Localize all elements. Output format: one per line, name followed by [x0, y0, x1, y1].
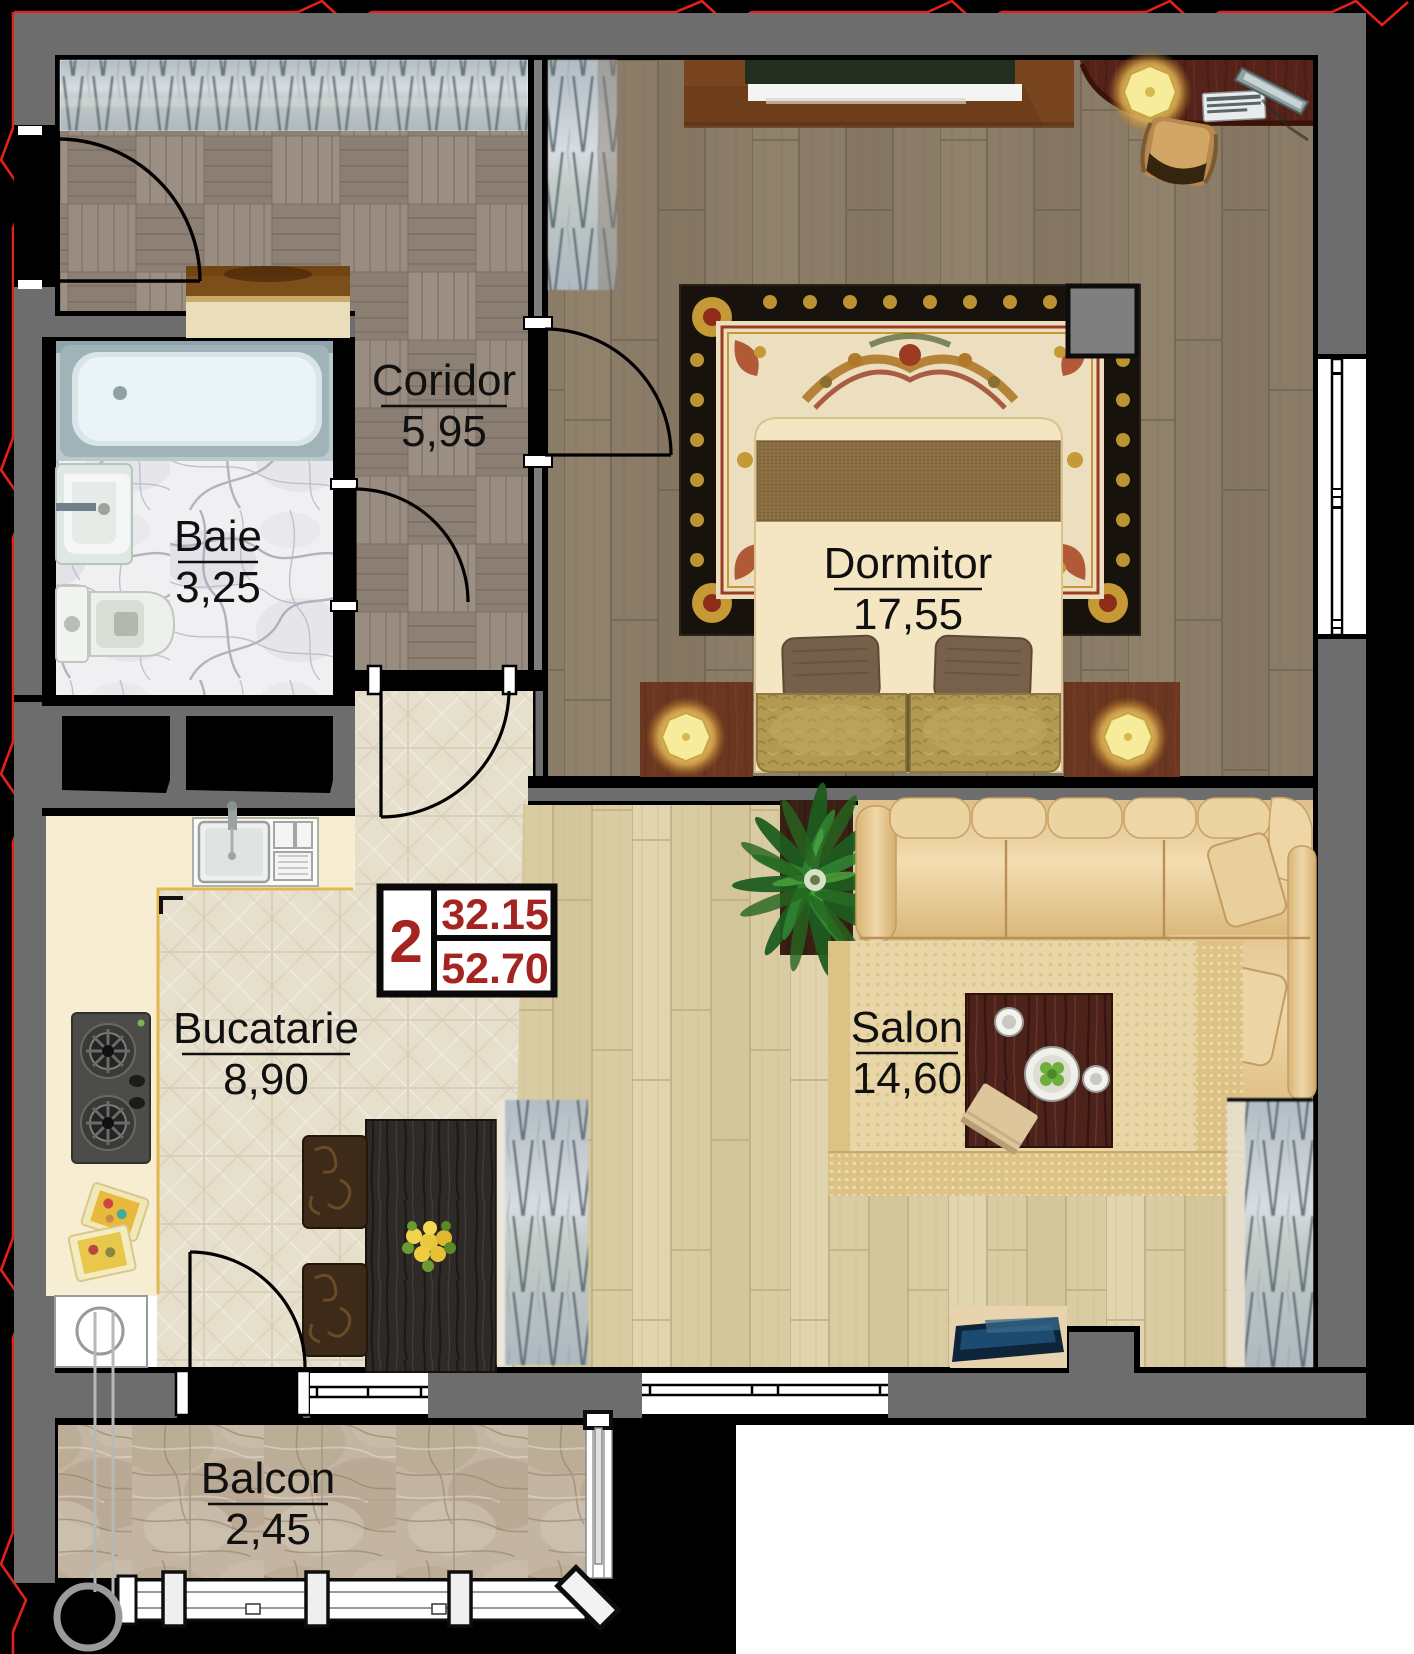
- svg-text:3,25: 3,25: [175, 563, 261, 612]
- svg-text:14,60: 14,60: [852, 1054, 962, 1103]
- svg-text:2,45: 2,45: [225, 1505, 311, 1554]
- svg-text:Baie: Baie: [174, 512, 262, 561]
- svg-text:8,90: 8,90: [223, 1055, 309, 1104]
- svg-text:Coridor: Coridor: [372, 356, 516, 405]
- svg-text:17,55: 17,55: [853, 590, 963, 639]
- svg-text:Bucatarie: Bucatarie: [173, 1004, 359, 1053]
- svg-text:5,95: 5,95: [401, 407, 487, 456]
- svg-text:52.70: 52.70: [441, 945, 549, 993]
- svg-text:Dormitor: Dormitor: [824, 539, 993, 588]
- svg-text:32.15: 32.15: [441, 891, 549, 939]
- svg-text:Salon: Salon: [851, 1003, 964, 1052]
- svg-text:Balcon: Balcon: [201, 1454, 336, 1503]
- svg-text:2: 2: [389, 908, 422, 975]
